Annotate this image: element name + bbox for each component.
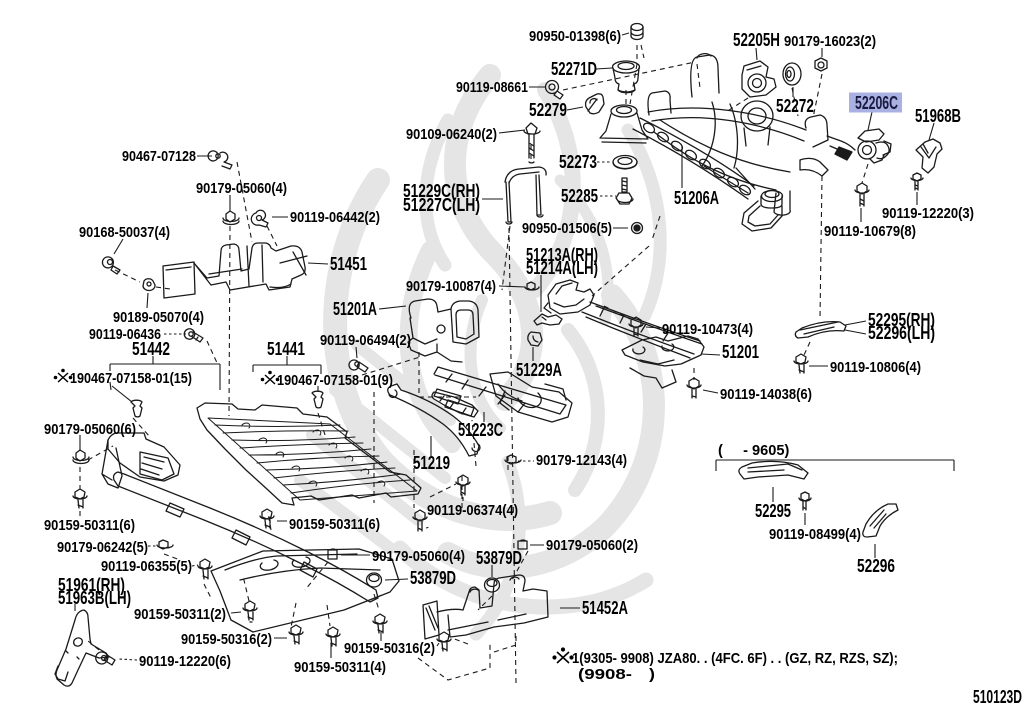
svg-text:90119-12220(6): 90119-12220(6) (139, 654, 231, 670)
svg-text:): ) (649, 667, 655, 683)
svg-text:53879D: 53879D (410, 568, 456, 588)
svg-text:90168-50037(4): 90168-50037(4) (79, 225, 170, 241)
svg-text:52296: 52296 (857, 556, 895, 576)
svg-text:90179-10087(4): 90179-10087(4) (406, 279, 496, 295)
svg-text:90179-05060(4): 90179-05060(4) (372, 549, 465, 565)
svg-text:51219: 51219 (413, 453, 450, 473)
svg-text:52273: 52273 (559, 152, 597, 172)
svg-text:51223C: 51223C (458, 420, 503, 440)
svg-text:190467-07158-01(9): 190467-07158-01(9) (277, 373, 393, 389)
svg-text:90119-06355(5): 90119-06355(5) (101, 559, 192, 575)
svg-text:51968B: 51968B (915, 106, 961, 126)
svg-text:90189-05070(4): 90189-05070(4) (113, 310, 204, 326)
svg-text:51206A: 51206A (674, 188, 719, 208)
svg-text:90159-50311(6): 90159-50311(6) (289, 517, 380, 533)
svg-text:90950-01506(5): 90950-01506(5) (522, 221, 612, 237)
svg-text:52285: 52285 (561, 186, 598, 206)
svg-text:90119-10806(4): 90119-10806(4) (830, 360, 921, 376)
svg-text:90119-10473(4): 90119-10473(4) (662, 322, 753, 338)
svg-text:90119-06374(4): 90119-06374(4) (427, 503, 518, 519)
svg-text:90159-50311(2): 90159-50311(2) (134, 607, 226, 623)
svg-text:51963B(LH): 51963B(LH) (58, 588, 131, 608)
svg-text:52279: 52279 (529, 100, 567, 120)
svg-text:190467-07158-01(15): 190467-07158-01(15) (70, 371, 192, 387)
svg-text:90119-08661: 90119-08661 (456, 80, 528, 96)
svg-text:90179-05060(4): 90179-05060(4) (196, 181, 287, 197)
svg-text:51229A: 51229A (516, 360, 562, 380)
svg-text:52271D: 52271D (551, 59, 597, 79)
svg-text:51214A(LH): 51214A(LH) (526, 258, 598, 278)
svg-text:90467-07128: 90467-07128 (122, 149, 196, 165)
svg-text:90179-16023(2): 90179-16023(2) (784, 34, 876, 50)
svg-text:52295: 52295 (755, 501, 791, 521)
svg-text:90119-14038(6): 90119-14038(6) (720, 387, 812, 403)
svg-text:51227C(LH): 51227C(LH) (403, 195, 480, 215)
svg-text:90119-10679(8): 90119-10679(8) (824, 224, 916, 240)
svg-text:52296(LH): 52296(LH) (868, 323, 935, 343)
svg-text:90159-50316(2): 90159-50316(2) (344, 641, 435, 657)
svg-text:90119-08499(4): 90119-08499(4) (769, 527, 861, 543)
svg-text:90159-50311(6): 90159-50311(6) (44, 518, 135, 534)
svg-text:90159-50316(2): 90159-50316(2) (181, 632, 272, 648)
svg-text:51442: 51442 (132, 339, 170, 359)
svg-text:90950-01398(6): 90950-01398(6) (529, 29, 621, 45)
svg-text:51441: 51441 (267, 339, 305, 359)
svg-text:90179-12143(4): 90179-12143(4) (536, 453, 627, 469)
svg-text:( - 9605): ( - 9605) (718, 443, 790, 459)
svg-text:90119-12220(3): 90119-12220(3) (882, 206, 974, 222)
svg-text:52206C: 52206C (855, 93, 898, 113)
svg-text:51451: 51451 (330, 254, 367, 274)
svg-text:90179-05060(2): 90179-05060(2) (546, 538, 638, 554)
svg-text:52205H: 52205H (733, 30, 780, 50)
svg-text:53879D: 53879D (476, 548, 522, 568)
svg-text:51452A: 51452A (582, 598, 628, 618)
svg-text:51201A: 51201A (333, 299, 377, 319)
svg-text:90109-06240(2): 90109-06240(2) (406, 127, 497, 143)
svg-text:90119-06494(2): 90119-06494(2) (320, 333, 411, 349)
svg-text:90159-50311(4): 90159-50311(4) (294, 660, 386, 676)
svg-text:90179-06242(5): 90179-06242(5) (57, 540, 148, 556)
svg-text:90119-06442(2): 90119-06442(2) (290, 210, 380, 226)
svg-text:(9908-: (9908- (578, 667, 632, 683)
svg-text:510123D: 510123D (973, 687, 1022, 707)
svg-text:51201: 51201 (722, 342, 759, 362)
svg-text:90179-05060(6): 90179-05060(6) (44, 422, 136, 438)
svg-text:52272: 52272 (776, 96, 814, 116)
svg-text:1(9305- 9908) JZA80. . (4FC.: 1(9305- 9908) JZA80. . (4FC. 6F) . . (GZ… (572, 651, 898, 667)
